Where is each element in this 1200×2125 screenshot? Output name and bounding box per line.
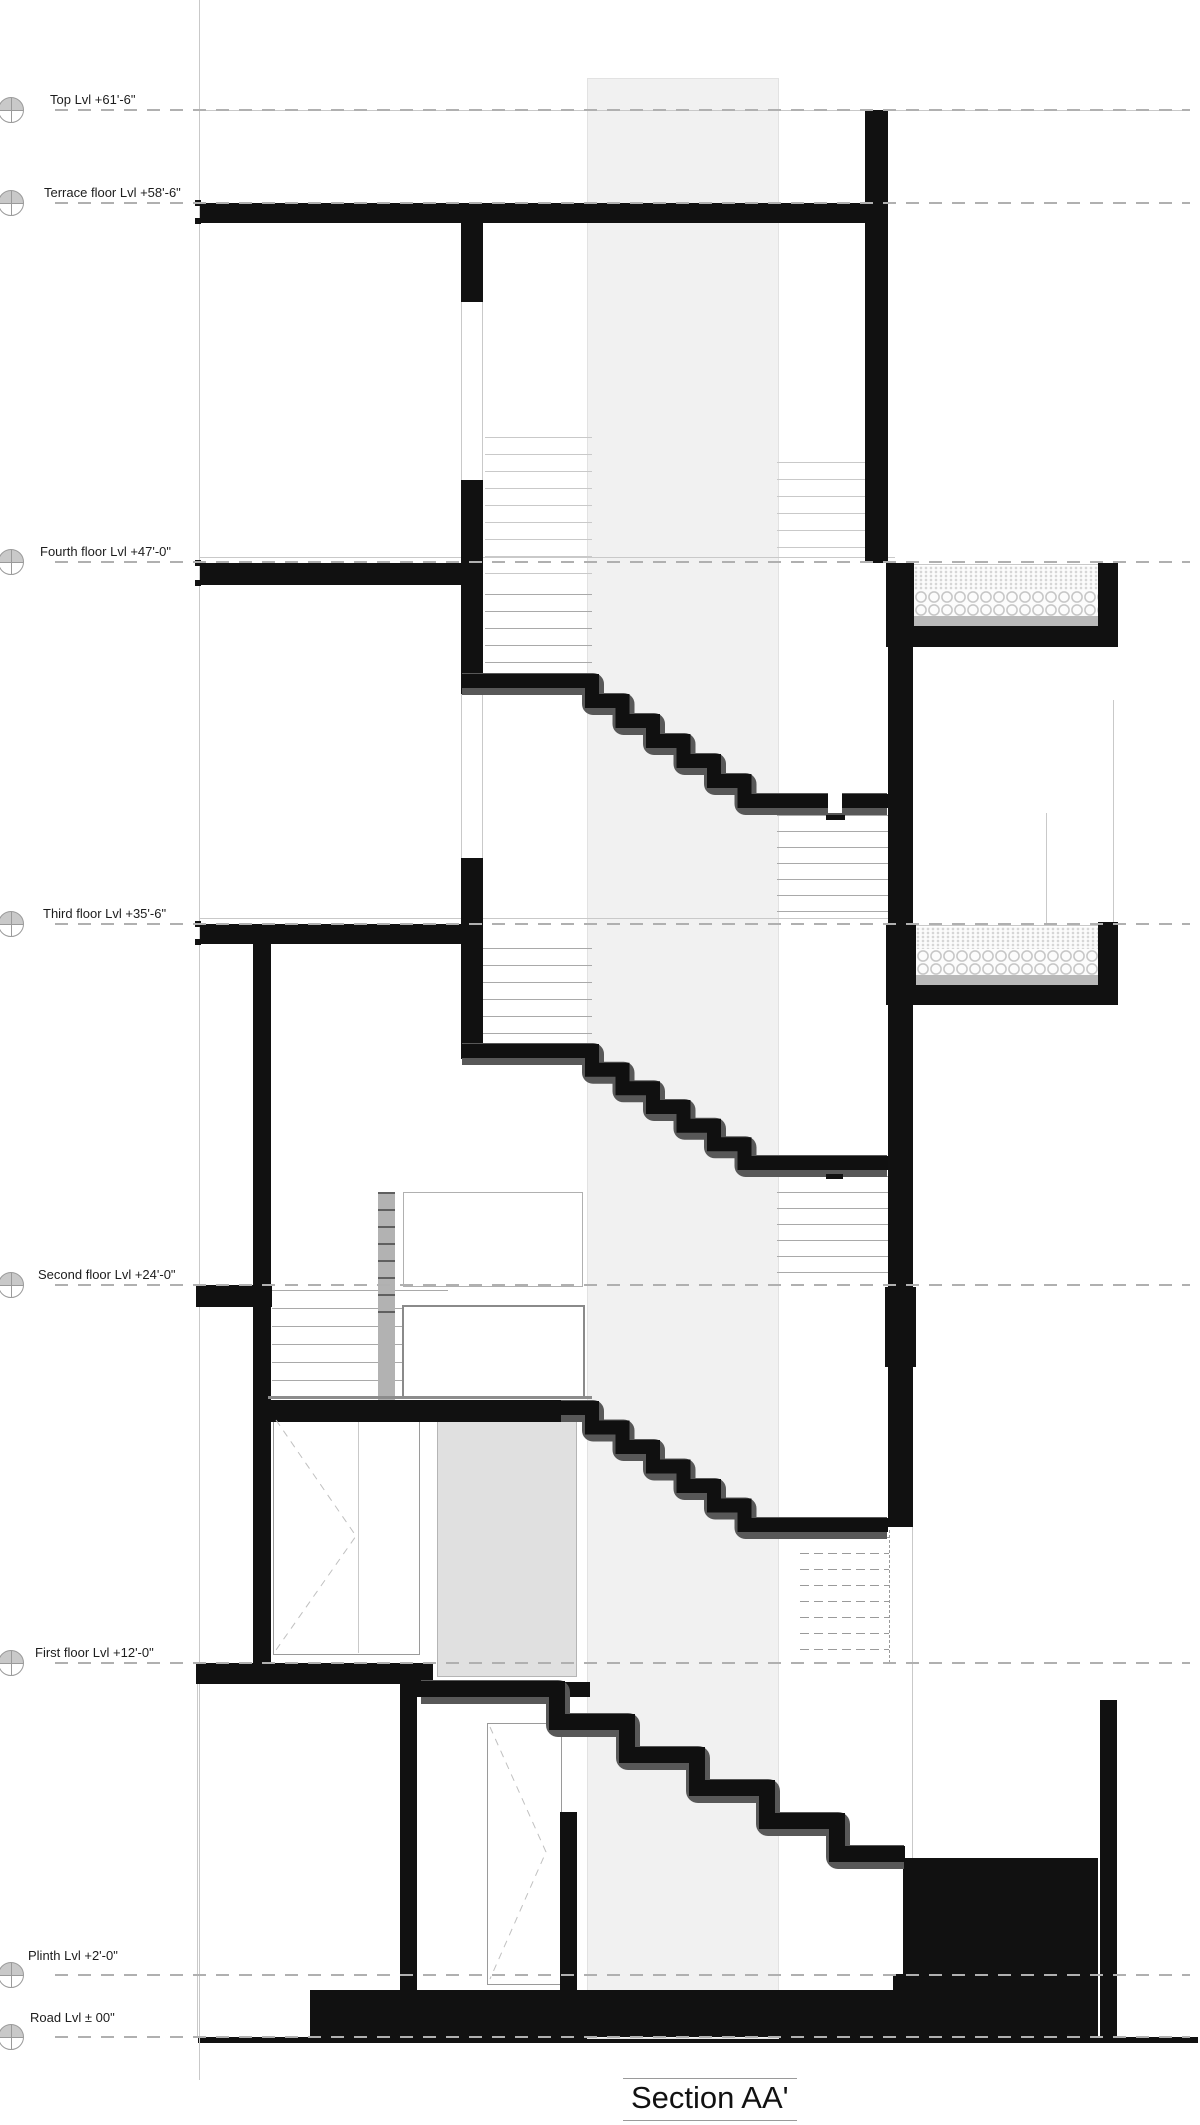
- balcony-screed-hatch-4f: [914, 566, 1098, 590]
- level-label: Fourth floor Lvl +47'-0": [40, 544, 171, 559]
- balcony-wall-4f: [886, 563, 914, 647]
- slab-break-dot: [195, 939, 201, 945]
- level-label: Second floor Lvl +24'-0": [38, 1267, 176, 1282]
- shaft-wall-stub: [461, 223, 483, 302]
- level-label: Road Lvl ± 00": [30, 2010, 115, 2025]
- balcony-upstand-3f: [1098, 922, 1118, 1005]
- partition-wall-elevation: [437, 1415, 577, 1677]
- drawing-title-text: Section AA': [623, 2078, 797, 2121]
- fourth-floor-slab: [200, 563, 481, 585]
- second-floor-slab-stub: [196, 1285, 272, 1307]
- hidden-stair-dashed-edge: [889, 1530, 890, 1663]
- right-wall-thick: [885, 1287, 916, 1367]
- entrance-rail-post: [560, 1812, 577, 1990]
- terrace-slab: [200, 203, 888, 223]
- opening-face-line: [482, 302, 483, 480]
- right-compound-wall: [1100, 1700, 1117, 2037]
- level-line-second: [55, 1284, 1190, 1286]
- elevation-stairs-topfloor-left: [485, 437, 592, 587]
- level-line-terrace: [55, 202, 1190, 204]
- level-line-road: [55, 2036, 1190, 2038]
- drawing-title: Section AA': [623, 2078, 797, 2121]
- hidden-stairs-dashed: [795, 1537, 889, 1661]
- level-line-third: [55, 923, 1190, 925]
- level-label: Plinth Lvl +2'-0": [28, 1948, 118, 1963]
- slab-break-dot: [195, 218, 201, 224]
- level-label: Third floor Lvl +35'-6": [43, 906, 166, 921]
- balcony-screed-strip-3f: [916, 975, 1098, 985]
- balcony-finish-line: [916, 925, 1098, 926]
- right-wall: [888, 647, 913, 924]
- split-slab-top-line: [268, 1396, 592, 1399]
- balcony-slab-4f: [914, 626, 1118, 647]
- level-label: First floor Lvl +12'-0": [35, 1645, 154, 1660]
- stair-shaft-band: [587, 78, 779, 2039]
- balcony-railing-line: [1113, 700, 1114, 922]
- elevation-stairs-3f-upper: [483, 948, 592, 1041]
- slab-break-dot: [195, 580, 201, 586]
- balcony-railing-line: [1046, 813, 1047, 924]
- level-label: Terrace floor Lvl +58'-6": [44, 185, 181, 200]
- landing-break-tick: [826, 1174, 843, 1179]
- level-datum-icon: [0, 97, 24, 123]
- door-elevation-first-floor: [273, 1417, 420, 1655]
- plinth-mass: [310, 1990, 1098, 2037]
- balcony-screed-hatch-3f: [916, 927, 1098, 949]
- balcony-upstand-4f: [1098, 563, 1118, 647]
- first-floor-slab: [196, 1663, 433, 1684]
- level-datum-icon: [0, 1962, 24, 1988]
- window-elevation-upper: [403, 1192, 583, 1287]
- stair-edge-line: [912, 1527, 913, 1858]
- opening-face-line: [461, 694, 462, 858]
- shaft-wall: [461, 480, 483, 694]
- basement-wall: [400, 1684, 417, 1992]
- level-datum-icon: [0, 190, 24, 216]
- section-drawing-canvas: Top Lvl +61'-6" Terrace floor Lvl +58'-6…: [0, 0, 1200, 2125]
- grid-line-left: [199, 0, 200, 2080]
- landing-break-tick: [826, 815, 845, 820]
- level-datum-icon: [0, 911, 24, 937]
- balcony-finish-line: [914, 564, 1098, 565]
- level-label: Top Lvl +61'-6": [50, 92, 136, 107]
- railing-ladder-rungs: [378, 1192, 395, 1324]
- balcony-pebble-hatch-3f: [916, 949, 1098, 975]
- level-line-plinth: [55, 1974, 1190, 1976]
- level-line-fourth: [55, 561, 1190, 563]
- level-line-first: [55, 1662, 1190, 1664]
- elevation-stairs-4f-lower: [777, 815, 888, 921]
- right-wall: [888, 1367, 913, 1527]
- entrance-step-notch: [893, 1974, 903, 1990]
- balcony-screed-strip-4f: [914, 616, 1098, 626]
- ground-wall-face-line: [197, 1684, 198, 2037]
- level-datum-icon: [0, 549, 24, 575]
- level-datum-icon: [0, 1650, 24, 1676]
- first-floor-slab-lower: [417, 1682, 590, 1697]
- opening-face-line: [461, 302, 462, 480]
- door-elevation-ground-floor: [487, 1723, 562, 1985]
- door-panel-line: [358, 1417, 359, 1653]
- opening-face-line: [482, 694, 483, 858]
- level-datum-icon: [0, 2024, 24, 2050]
- balcony-pebble-hatch-4f: [914, 590, 1098, 616]
- shaft-wall: [461, 858, 483, 1059]
- split-level-slab: [268, 1400, 592, 1422]
- level-line-top: [55, 109, 1190, 111]
- section-drawing-page: { "drawing": { "title": "Section AA'", "…: [0, 0, 1200, 2125]
- third-floor-slab: [200, 924, 481, 944]
- right-parapet-wall: [865, 110, 888, 563]
- level-datum-icon: [0, 1272, 24, 1298]
- balcony-slab-3f: [912, 985, 1118, 1005]
- window-elevation-lower: [402, 1305, 585, 1398]
- right-wall: [888, 1005, 913, 1287]
- elevation-stairs-3f-lower: [777, 1176, 888, 1283]
- landing-break-gap: [828, 790, 842, 813]
- entrance-step-mass: [903, 1858, 1098, 1990]
- elevation-stairs-4f-upper: [485, 594, 592, 674]
